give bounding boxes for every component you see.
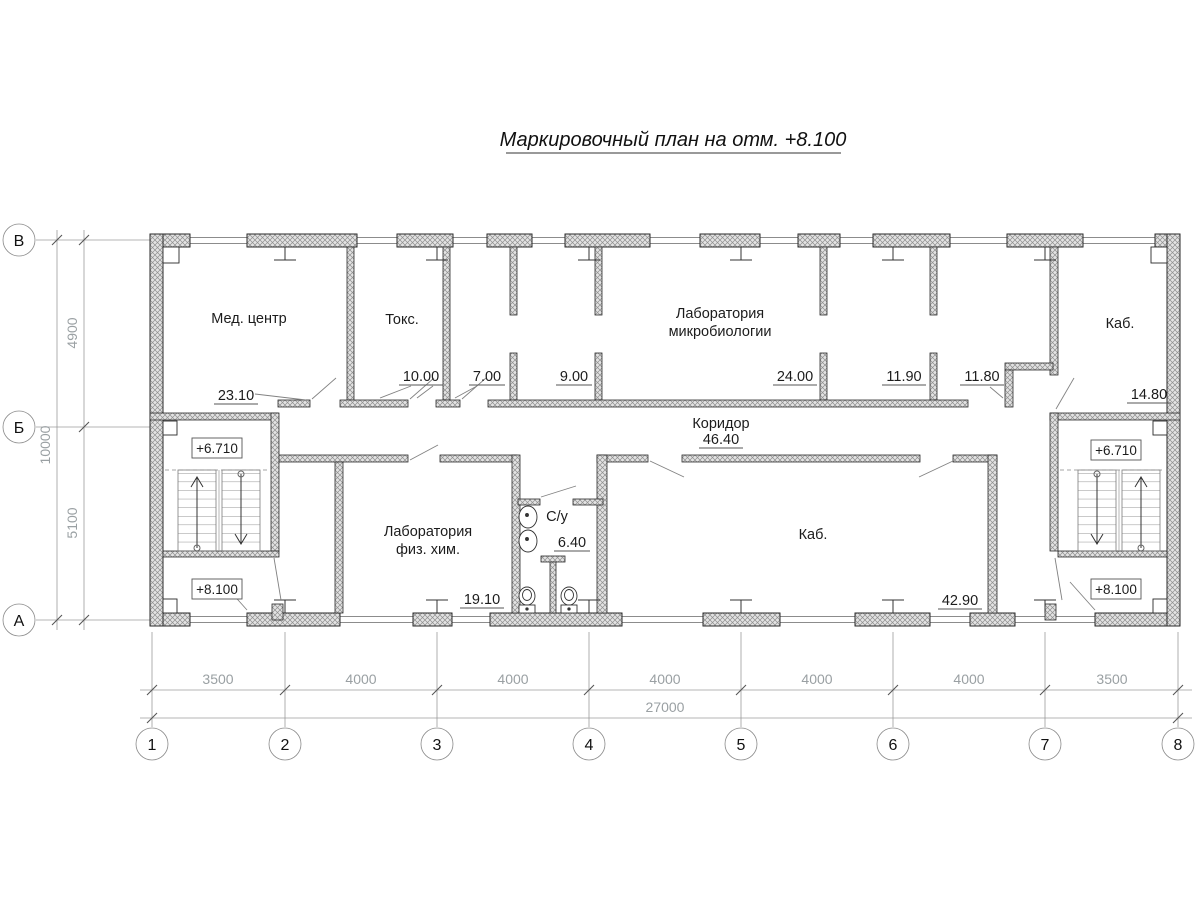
col-axis-8: 8 bbox=[1174, 737, 1183, 754]
area-kab-big: 42.90 bbox=[942, 593, 978, 609]
elevation-right-lower: +8.100 bbox=[1095, 582, 1137, 597]
row-axis-a: А bbox=[14, 613, 25, 630]
room-kab-big-label: Каб. bbox=[799, 527, 828, 543]
dim-bay-1: 3500 bbox=[202, 671, 233, 687]
room-lab-fiz-label-1: Лаборатория bbox=[384, 524, 472, 540]
area-r7: 7.00 bbox=[473, 369, 501, 385]
area-lab-micro: 24.00 bbox=[777, 369, 813, 385]
area-su: 6.40 bbox=[558, 535, 586, 551]
drawing-sheet: Маркировочный план на отм. +8.100 В Б А … bbox=[0, 0, 1200, 900]
dim-left-lower: 5100 bbox=[64, 507, 80, 538]
dim-bay-5: 4000 bbox=[801, 671, 832, 687]
area-r9: 9.00 bbox=[560, 369, 588, 385]
col-axis-2: 2 bbox=[281, 737, 290, 754]
exterior-walls bbox=[150, 234, 1180, 626]
room-med-center-label: Мед. центр bbox=[211, 311, 286, 327]
dim-left-total: 10000 bbox=[37, 425, 53, 464]
col-axis-4: 4 bbox=[585, 737, 594, 754]
dim-bay-7: 3500 bbox=[1096, 671, 1127, 687]
dim-bay-6: 4000 bbox=[953, 671, 984, 687]
stair-left bbox=[165, 470, 269, 551]
col-axis-7: 7 bbox=[1041, 737, 1050, 754]
stair-right bbox=[1060, 470, 1165, 551]
toilet-icon bbox=[561, 587, 577, 613]
bottom-axis-dimensions: 3500 4000 4000 4000 4000 4000 3500 27000… bbox=[136, 632, 1194, 760]
dim-bay-2: 4000 bbox=[345, 671, 376, 687]
dim-bay-4: 4000 bbox=[649, 671, 680, 687]
sink-icon bbox=[519, 506, 537, 528]
room-toks-label: Токс. bbox=[385, 312, 419, 328]
elevation-left-upper: +6.710 bbox=[196, 441, 238, 456]
col-axis-3: 3 bbox=[433, 737, 442, 754]
elevation-right-upper: +6.710 bbox=[1095, 443, 1137, 458]
row-axis-b: Б bbox=[14, 420, 25, 437]
area-r1190: 11.90 bbox=[886, 369, 921, 385]
room-koridor-label: Коридор bbox=[692, 416, 749, 432]
row-axis-v: В bbox=[14, 233, 25, 250]
col-axis-5: 5 bbox=[737, 737, 746, 754]
sink-icon bbox=[519, 530, 537, 552]
dim-bay-3: 4000 bbox=[497, 671, 528, 687]
doors-and-leaders bbox=[222, 378, 1095, 610]
room-kab-top-label: Каб. bbox=[1106, 316, 1135, 332]
toilet-icon bbox=[519, 587, 535, 613]
col-axis-6: 6 bbox=[889, 737, 898, 754]
column-marks bbox=[274, 247, 1056, 613]
room-lab-fiz-label-2: физ. хим. bbox=[396, 542, 460, 558]
area-koridor: 46.40 bbox=[703, 432, 739, 448]
area-lab-fiz: 19.10 bbox=[464, 592, 500, 608]
area-toks: 10.00 bbox=[403, 369, 439, 385]
elevation-left-lower: +8.100 bbox=[196, 582, 238, 597]
area-r1180: 11.80 bbox=[964, 369, 999, 385]
left-axis-dimensions: В Б А 4900 5100 10000 bbox=[3, 224, 150, 636]
room-lab-micro-label-1: Лаборатория bbox=[676, 306, 764, 322]
wall-pilasters bbox=[163, 247, 1167, 613]
title-block: Маркировочный план на отм. +8.100 bbox=[500, 129, 847, 153]
area-med-center: 23.10 bbox=[218, 388, 254, 404]
dim-total: 27000 bbox=[646, 699, 685, 715]
room-su-label: С/у bbox=[546, 509, 569, 525]
floor-plan-svg: Маркировочный план на отм. +8.100 В Б А … bbox=[0, 0, 1200, 900]
col-axis-1: 1 bbox=[148, 737, 157, 754]
area-kab-top: 14.80 bbox=[1131, 387, 1167, 403]
room-lab-micro-label-2: микробиологии bbox=[669, 324, 772, 340]
sheet-title: Маркировочный план на отм. +8.100 bbox=[500, 129, 847, 151]
interior-walls bbox=[150, 247, 1180, 620]
dim-left-upper: 4900 bbox=[64, 317, 80, 348]
